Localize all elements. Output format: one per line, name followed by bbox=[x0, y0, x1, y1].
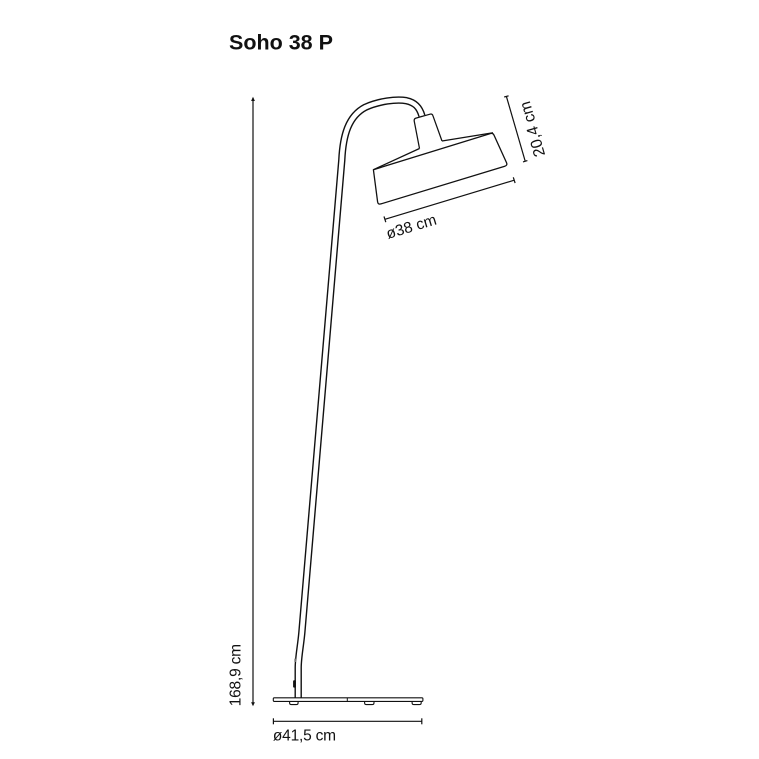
svg-text:168,9 cm: 168,9 cm bbox=[228, 644, 245, 706]
svg-text:Soho 38 P: Soho 38 P bbox=[229, 31, 333, 55]
svg-text:ø41,5 cm: ø41,5 cm bbox=[273, 727, 336, 744]
